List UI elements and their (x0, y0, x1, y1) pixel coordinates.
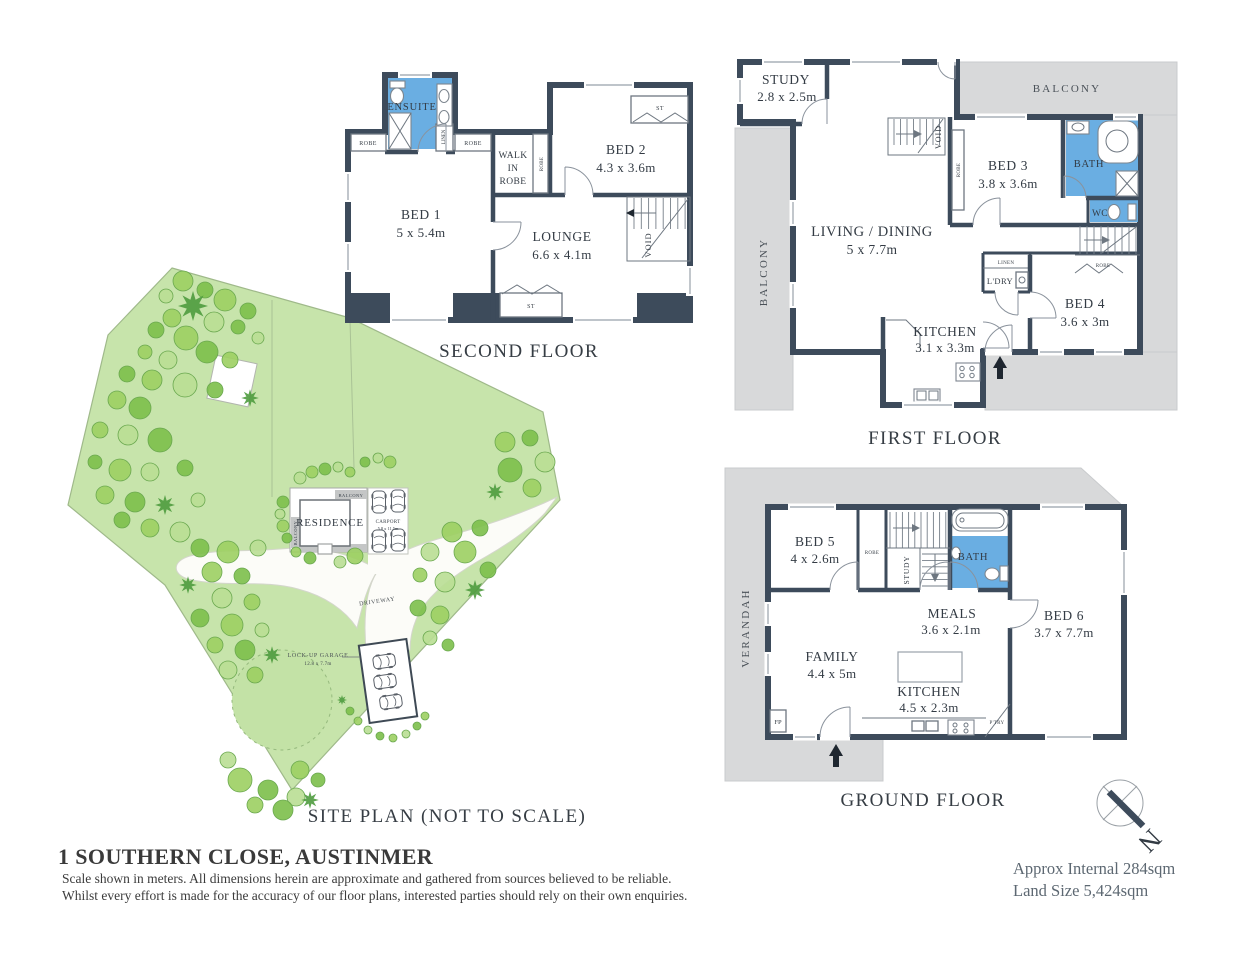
gf-study-label: STUDY (902, 555, 911, 584)
tree-icon (196, 341, 218, 363)
tree-icon (96, 486, 114, 504)
tree-icon (159, 351, 177, 369)
tree-icon (373, 453, 383, 463)
sf-void: VOID (643, 232, 653, 257)
tree-icon (217, 541, 239, 563)
stairs-treads (890, 512, 946, 548)
tree-icon (275, 509, 285, 519)
tree-icon (92, 422, 108, 438)
tree-icon (345, 467, 355, 477)
tree-icon (202, 562, 222, 582)
gf-family-dims: 4.4 x 5m (807, 666, 856, 681)
tree-icon (191, 539, 209, 557)
tree-icon (119, 366, 135, 382)
sf-lounge-name: LOUNGE (532, 229, 591, 244)
tree-icon (454, 541, 476, 563)
tree-icon (498, 458, 522, 482)
tree-icon (319, 463, 331, 475)
sf-bed1-dims: 5 x 5.4m (396, 225, 445, 240)
tree-icon (523, 479, 541, 497)
tree-icon (148, 322, 164, 338)
tree-icon (170, 522, 190, 542)
tree-icon (244, 594, 260, 610)
tree-icon (88, 455, 102, 469)
tree-icon (234, 568, 250, 584)
sf-robe-right: ROBE (464, 141, 482, 147)
gf-kitchen-name: KITCHEN (897, 684, 960, 699)
ff-linen-label: LINEN (998, 261, 1015, 266)
tree-icon (333, 462, 343, 472)
tree-icon (535, 452, 555, 472)
residence-balcony-top-label: BALCONY (339, 493, 364, 498)
ff-balcony-top-label: BALCONY (1033, 83, 1102, 95)
ff-kitchen-dims: 3.1 x 3.3m (915, 340, 975, 355)
gf-kitchen-dims: 4.5 x 2.3m (899, 700, 959, 715)
gf-meals-name: MEALS (928, 606, 977, 621)
tree-icon (364, 726, 372, 734)
tree-icon (472, 520, 488, 536)
sf-bed2-name: BED 2 (606, 142, 646, 157)
ff-balcony-left-label: BALCONY (758, 238, 770, 307)
gf-bath-label: BATH (958, 552, 989, 563)
tree-icon (389, 734, 397, 742)
gf-robe-label: ROBE (865, 551, 880, 556)
gf-bed5-dims: 4 x 2.6m (790, 551, 839, 566)
gf-fp-label: FP (774, 719, 782, 726)
tree-icon (413, 722, 421, 730)
ff-kitchen-name: KITCHEN (913, 324, 976, 339)
tree-icon (376, 732, 384, 740)
tree-icon (384, 456, 396, 468)
tree-icon (148, 428, 172, 452)
tree-icon (421, 712, 429, 720)
garage-dims: 12.8 x 7.7m (304, 662, 331, 667)
tree-icon (277, 496, 289, 508)
tree-icon (255, 623, 269, 637)
ff-robe-bed4: ROBE (1096, 264, 1111, 269)
site-plan-title: SITE PLAN (NOT TO SCALE) (308, 806, 587, 827)
tree-icon (360, 457, 370, 467)
tree-icon (465, 580, 485, 600)
carport-dims: 5.8 x 11.5m (378, 526, 399, 531)
approx-internal-area: Approx Internal 284sqm (1013, 859, 1175, 878)
tree-icon (207, 382, 223, 398)
gf-bed6-dims: 3.7 x 7.7m (1034, 625, 1094, 640)
tree-icon (306, 466, 318, 478)
floorplan-sheet: DRIVEWAY LOCK-UP GARAGE 12.8 x 7.7m CARP… (0, 0, 1242, 960)
residence-label: RESIDENCE (296, 517, 364, 529)
tree-icon (214, 289, 236, 311)
second-floor-plan: BED 1 5 x 5.4m LOUNGE 6.6 x 4.1m BED 2 4… (344, 71, 693, 362)
tree-icon (334, 556, 346, 568)
tree-icon (304, 552, 316, 564)
ground-floor-title: GROUND FLOOR (840, 790, 1005, 811)
tree-icon (155, 495, 175, 515)
tree-icon (435, 572, 455, 592)
tree-icon (282, 533, 292, 543)
tree-icon (191, 493, 205, 507)
gf-family-name: FAMILY (806, 649, 859, 664)
tree-icon (173, 271, 193, 291)
tree-icon (431, 606, 449, 624)
tree-icon (240, 303, 256, 319)
tree-icon (346, 707, 354, 715)
ff-robe-bed3: ROBE (957, 163, 962, 178)
tree-icon (495, 432, 515, 452)
gf-meals-dims: 3.6 x 2.1m (921, 622, 981, 637)
ff-wc-label: WC (1092, 209, 1108, 219)
sf-bed2-dims: 4.3 x 3.6m (596, 160, 656, 175)
tree-icon (277, 520, 289, 532)
garage-label: LOCK-UP GARAGE (288, 653, 349, 659)
tree-icon (177, 460, 193, 476)
tree-icon (311, 773, 325, 787)
tree-icon (273, 800, 293, 820)
tree-icon (191, 609, 209, 627)
ff-living-name: LIVING / DINING (811, 224, 933, 240)
tree-icon (163, 309, 181, 327)
footer: 1 SOUTHERN CLOSE, AUSTINMER Scale shown … (58, 844, 1175, 903)
floorplan-canvas: DRIVEWAY LOCK-UP GARAGE 12.8 x 7.7m CARP… (0, 0, 1242, 960)
sf-linen: LINEN (442, 129, 447, 144)
tree-icon (228, 768, 252, 792)
tree-icon (402, 730, 410, 738)
tree-icon (337, 695, 347, 705)
compass-north-letter: N (1132, 823, 1167, 858)
ff-bath-label: BATH (1074, 159, 1105, 170)
tree-icon (204, 312, 224, 332)
sf-st-bottom: ST (527, 304, 535, 310)
tree-icon (480, 562, 496, 578)
tree-icon (138, 345, 152, 359)
sf-lounge-dims: 6.6 x 4.1m (532, 247, 592, 262)
tree-icon (197, 282, 213, 298)
tree-icon (118, 425, 138, 445)
tree-icon (423, 631, 437, 645)
tree-icon (294, 472, 306, 484)
tree-icon (174, 326, 198, 350)
tree-icon (114, 512, 130, 528)
ff-void: VOID (934, 125, 943, 149)
tree-icon (125, 492, 145, 512)
gf-ptry-label: P'TRY (990, 721, 1005, 726)
tree-icon (421, 543, 439, 561)
disclaimer-line2: Whilst every effort is made for the accu… (62, 888, 687, 903)
ff-living-dims: 5 x 7.7m (847, 242, 898, 257)
tree-icon (247, 797, 263, 813)
ff-bed3-name: BED 3 (988, 158, 1028, 173)
tree-icon (291, 547, 301, 557)
ff-balcony-bottom (985, 352, 1177, 410)
tree-icon (142, 370, 162, 390)
tree-icon (221, 614, 243, 636)
tree-icon (129, 397, 151, 419)
sf-ensuite-label: ENSUITE (387, 102, 436, 113)
tree-icon (252, 332, 264, 344)
ff-study-name: STUDY (762, 72, 810, 87)
tree-icon (347, 548, 363, 564)
tree-icon (247, 667, 263, 683)
carport: CARPORT 5.8 x 11.5m (368, 488, 408, 554)
compass: N (1097, 780, 1168, 858)
tree-icon (442, 522, 462, 542)
tree-icon (250, 540, 266, 556)
sf-wir-2: IN (508, 164, 519, 174)
tree-icon (442, 639, 454, 651)
carport-label: CARPORT (376, 520, 401, 525)
tree-icon (141, 463, 159, 481)
tree-icon (109, 459, 131, 481)
tree-icon (522, 430, 538, 446)
tree-icon (354, 717, 362, 725)
ff-bed4-name: BED 4 (1065, 296, 1105, 311)
sf-robe-left: ROBE (359, 141, 377, 147)
sf-wir-1: WALK (498, 151, 527, 161)
address-title: 1 SOUTHERN CLOSE, AUSTINMER (58, 844, 434, 869)
ff-study-dims: 2.8 x 2.5m (757, 89, 817, 104)
second-floor-title: SECOND FLOOR (439, 341, 599, 362)
tree-icon (231, 320, 245, 334)
tree-icon (410, 600, 426, 616)
residence: RESIDENCE BALCONY BALCONY (290, 488, 367, 554)
sf-st-top: ST (656, 106, 664, 112)
tree-icon (173, 373, 197, 397)
residence-balcony-left-label: BALCONY (293, 520, 298, 545)
sf-wir-3: ROBE (500, 177, 527, 187)
tree-icon (141, 519, 159, 537)
tree-icon (235, 640, 255, 660)
tree-icon (159, 289, 173, 303)
gf-bed6-name: BED 6 (1044, 608, 1084, 623)
tree-icon (222, 352, 238, 368)
ff-bed3-dims: 3.8 x 3.6m (978, 176, 1038, 191)
lockup-garage (359, 639, 417, 723)
tree-icon (220, 752, 236, 768)
land-size: Land Size 5,424sqm (1013, 881, 1148, 900)
tree-icon (212, 588, 232, 608)
disclaimer-line1: Scale shown in meters. All dimensions he… (62, 871, 672, 886)
first-floor-plan: BALCONY BALCONY VOID (735, 59, 1177, 450)
gf-verandah-label: VERANDAH (740, 588, 752, 667)
tree-icon (219, 661, 237, 679)
tree-icon (108, 391, 126, 409)
tree-icon (413, 568, 427, 582)
ground-floor-plan: VERANDAH STUDY ROBE (725, 468, 1128, 811)
gf-bed5-name: BED 5 (795, 534, 835, 549)
sf-robe-side: ROBE (540, 157, 545, 172)
sf-bed1-name: BED 1 (401, 207, 441, 222)
ff-ldry-label: L'DRY (987, 276, 1013, 286)
tree-icon (258, 780, 278, 800)
ff-bed4-dims: 3.6 x 3m (1060, 314, 1109, 329)
tree-icon (291, 761, 309, 779)
first-floor-title: FIRST FLOOR (868, 428, 1002, 449)
tree-icon (178, 291, 208, 321)
tree-icon (207, 637, 223, 653)
